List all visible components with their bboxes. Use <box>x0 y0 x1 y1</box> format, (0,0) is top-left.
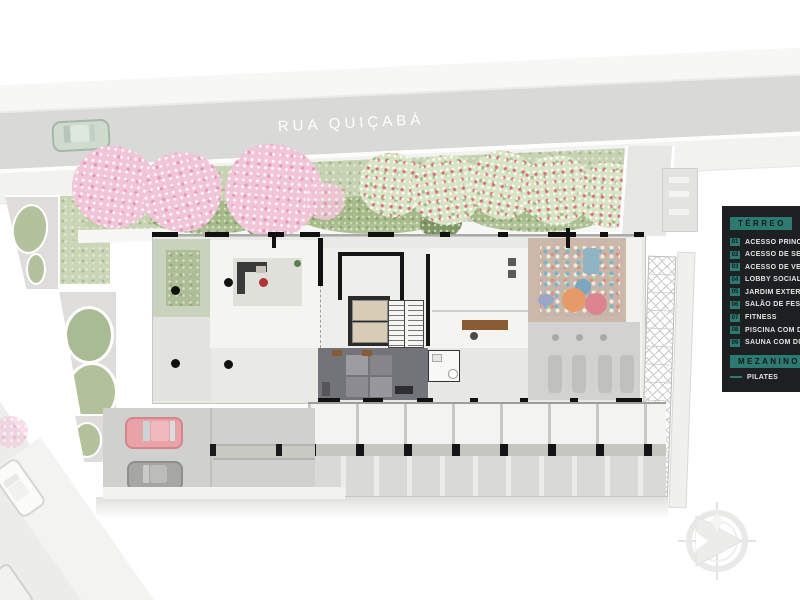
sink <box>432 354 442 362</box>
wall-segment <box>634 232 644 237</box>
legend-terreo-title: TÉRREO <box>730 217 792 230</box>
wall-segment <box>368 232 394 237</box>
gym-black-equipment <box>395 386 413 394</box>
car-gray-roof <box>150 465 167 483</box>
gym-mat <box>370 355 392 375</box>
planter-upper-left <box>0 195 60 291</box>
planter-lower-left <box>36 290 118 416</box>
core-wall <box>338 252 400 256</box>
wall-segment <box>300 232 320 237</box>
legend-item-06: 06 SALÃO DE FESTAS A <box>730 301 800 309</box>
gym-equipment-dot <box>552 334 559 341</box>
column-dot <box>171 286 180 295</box>
car-green-roof <box>70 125 89 143</box>
reception-desk <box>462 320 508 330</box>
core-area <box>322 248 430 348</box>
internal-garden-room <box>153 239 211 317</box>
stairs <box>388 300 424 348</box>
service-room-top-right <box>662 168 698 232</box>
lobby-coffee-table <box>256 266 266 273</box>
garage-beam-end <box>276 444 282 456</box>
garage-beam-end <box>210 444 216 456</box>
legend-item-pilates: PILATES <box>730 373 800 381</box>
legend-item-03: 03 ACESSO DE VEÍCULOS <box>730 263 800 271</box>
planter-tree-ellipse <box>64 306 114 364</box>
car-green-windshield <box>63 126 70 143</box>
gym-mat <box>346 355 368 375</box>
legend-item-number: 06 <box>730 301 740 309</box>
legend-item-05: 05 JARDIM EXTERNO <box>730 288 800 296</box>
column-dot <box>171 359 180 368</box>
lobby-social-room <box>210 240 322 348</box>
wall-vertical <box>318 238 323 286</box>
louver-slat <box>669 177 689 183</box>
louver-slat <box>669 191 689 197</box>
car-green-rear-window <box>89 124 95 141</box>
wall-segment <box>205 232 229 237</box>
wall-segment <box>600 232 608 237</box>
legend-item-number: 02 <box>730 251 740 259</box>
parking-elevation-upper <box>308 402 666 446</box>
legend-item-number: 07 <box>730 314 740 322</box>
treadmill <box>620 355 634 393</box>
legend-item-01: 01 ACESSO PRINCIPAL <box>730 238 800 246</box>
legend-item-label: SALÃO DE FESTAS A <box>745 301 800 308</box>
garage-beam <box>213 444 315 460</box>
appliance <box>508 270 516 278</box>
garage-driveway-strip <box>103 487 345 499</box>
fitness-room <box>528 322 640 400</box>
legend-item-04: 04 LOBBY SOCIAL <box>730 276 800 284</box>
ball-pink <box>585 293 607 315</box>
party-room <box>528 238 626 322</box>
car-pink-top-view <box>125 417 183 449</box>
legend-item-number: 03 <box>730 263 740 271</box>
core-wall <box>400 252 404 302</box>
wall-segment <box>152 232 178 237</box>
legend-item-number: 09 <box>730 339 740 347</box>
legend-item-label: FITNESS <box>745 314 777 321</box>
legend-item-label: JARDIM EXTERNO <box>745 289 800 296</box>
wall-segment <box>498 232 508 237</box>
lobby-plant <box>294 260 301 267</box>
treadmill <box>548 355 562 393</box>
wall-tee <box>272 232 276 248</box>
blob-lavender <box>538 294 554 306</box>
legend-item-label: ACESSO PRINCIPAL <box>745 239 800 246</box>
louver-slat <box>669 209 689 215</box>
play-mat-blue <box>583 248 599 274</box>
planter-tree-ellipse <box>26 253 46 285</box>
legend-item-number: 04 <box>730 276 740 284</box>
stair-rail <box>404 301 408 347</box>
street-name-label: RUA QUIÇABÁ <box>277 111 424 135</box>
kitchen-service-room <box>430 248 530 348</box>
gym-mat-zone <box>318 348 428 400</box>
room-below-garden <box>153 317 211 401</box>
legend-item-09: 09 SAUNA COM DUCHA <box>730 339 800 347</box>
appliance <box>508 258 516 266</box>
site-plan-canvas: RUA QUIÇABÁ <box>0 0 800 600</box>
treadmill <box>572 355 586 393</box>
legend-item-number: 01 <box>730 238 740 246</box>
planter-tree-ellipse <box>72 422 102 458</box>
car-gray-windshield <box>143 465 149 483</box>
treadmill <box>598 355 612 393</box>
car-pink-rear-window <box>170 421 175 441</box>
planter-tree-ellipse <box>9 202 52 257</box>
legend-item-label: PISCINA COM DECK <box>745 327 800 334</box>
gym-equipment-dot <box>600 334 607 341</box>
wall-tee <box>566 228 570 248</box>
elevator-shaft <box>348 296 390 346</box>
legend-item-label: LOBBY SOCIAL <box>745 276 800 283</box>
elevator-cab-2 <box>352 322 388 343</box>
parking-elevation-beam <box>308 444 666 456</box>
parking-elevation-lower <box>308 456 666 496</box>
desk-chair <box>470 332 478 340</box>
bathroom <box>428 350 460 382</box>
legend-item-label: SAUNA COM DUCHA <box>745 339 800 346</box>
wall-segment <box>440 232 450 237</box>
legend-item-number: 08 <box>730 326 740 334</box>
legend-item-08: 08 PISCINA COM DECK <box>730 326 800 334</box>
gym-mat <box>346 377 368 397</box>
gym-bench <box>332 350 342 356</box>
legend-panel: TÉRREO 01 ACESSO PRINCIPAL 02 ACESSO DE … <box>722 206 800 392</box>
column-dot <box>224 360 233 369</box>
wall-segment <box>268 232 284 237</box>
legend-dash-icon <box>730 376 742 378</box>
internal-garden-rug <box>166 250 200 306</box>
ball-orange <box>562 288 586 312</box>
toilet <box>448 369 458 379</box>
column-dot <box>224 278 233 287</box>
car-pink-windshield <box>143 421 150 441</box>
legend-item-label: ACESSO DE SERVIÇO <box>745 251 800 258</box>
legend-item-label: ACESSO DE VEÍCULOS <box>745 264 800 271</box>
ground-fade <box>96 497 668 519</box>
gym-mat <box>370 377 392 397</box>
dumbbell-rack <box>322 382 330 396</box>
counter-line <box>432 310 528 312</box>
legend-item-07: 07 FITNESS <box>730 314 800 322</box>
lobby-red-armchair <box>259 278 268 287</box>
lobby-sofa-side <box>237 272 245 294</box>
core-wall <box>338 254 342 300</box>
legend-item-02: 02 ACESSO DE SERVIÇO <box>730 251 800 259</box>
legend-item-number: 05 <box>730 288 740 296</box>
car-pink-roof <box>151 421 169 441</box>
gym-bench <box>362 350 372 356</box>
compass-icon <box>678 502 756 580</box>
legend-mezanino-title: MEZANINO <box>730 355 800 368</box>
legend-item-label: PILATES <box>747 374 778 381</box>
gym-equipment-dot <box>576 334 583 341</box>
wall-segment <box>548 232 576 237</box>
elevator-cab-1 <box>352 300 388 321</box>
